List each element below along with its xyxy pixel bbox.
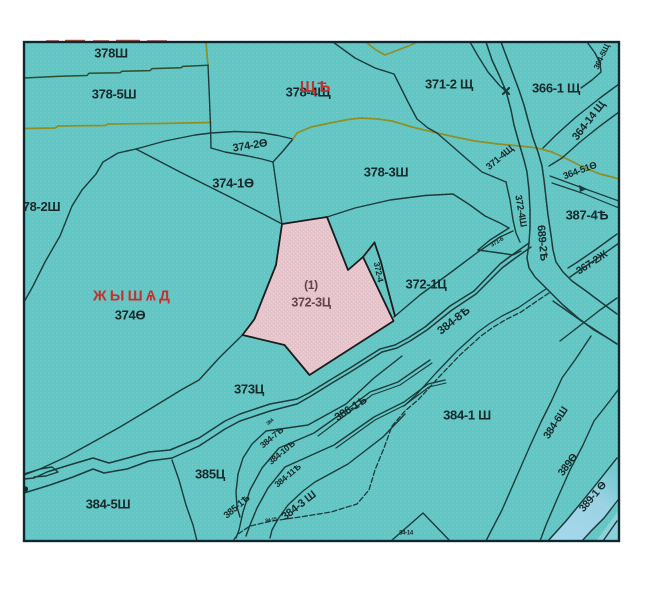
svg-text:378-3Ш: 378-3Ш (364, 164, 409, 179)
svg-text:384-1 Ш: 384-1 Ш (443, 407, 491, 422)
svg-text:378Ш: 378Ш (94, 45, 128, 60)
svg-text:ЖЫШѦД: ЖЫШѦД (92, 287, 173, 304)
svg-text:366-1 Щ: 366-1 Щ (532, 80, 581, 95)
svg-text:374Ө: 374Ө (115, 307, 146, 322)
svg-text:ЩѢ: ЩѢ (300, 79, 332, 96)
svg-text:372-3Ц: 372-3Ц (291, 295, 331, 309)
svg-text:374-1Ө: 374-1Ө (212, 175, 254, 190)
svg-text:(1): (1) (304, 278, 318, 292)
svg-text:372-1Ц: 372-1Ц (406, 276, 448, 291)
svg-text:385Ц: 385Ц (195, 466, 226, 481)
svg-text:387-4Ѣ: 387-4Ѣ (566, 207, 609, 222)
svg-text:378-5Ш: 378-5Ш (92, 86, 137, 101)
svg-text:384-5Ш: 384-5Ш (86, 496, 131, 511)
svg-text:84-14: 84-14 (399, 531, 414, 537)
svg-text:371-2 Щ: 371-2 Щ (425, 76, 474, 91)
svg-text:373Ц: 373Ц (234, 381, 265, 396)
